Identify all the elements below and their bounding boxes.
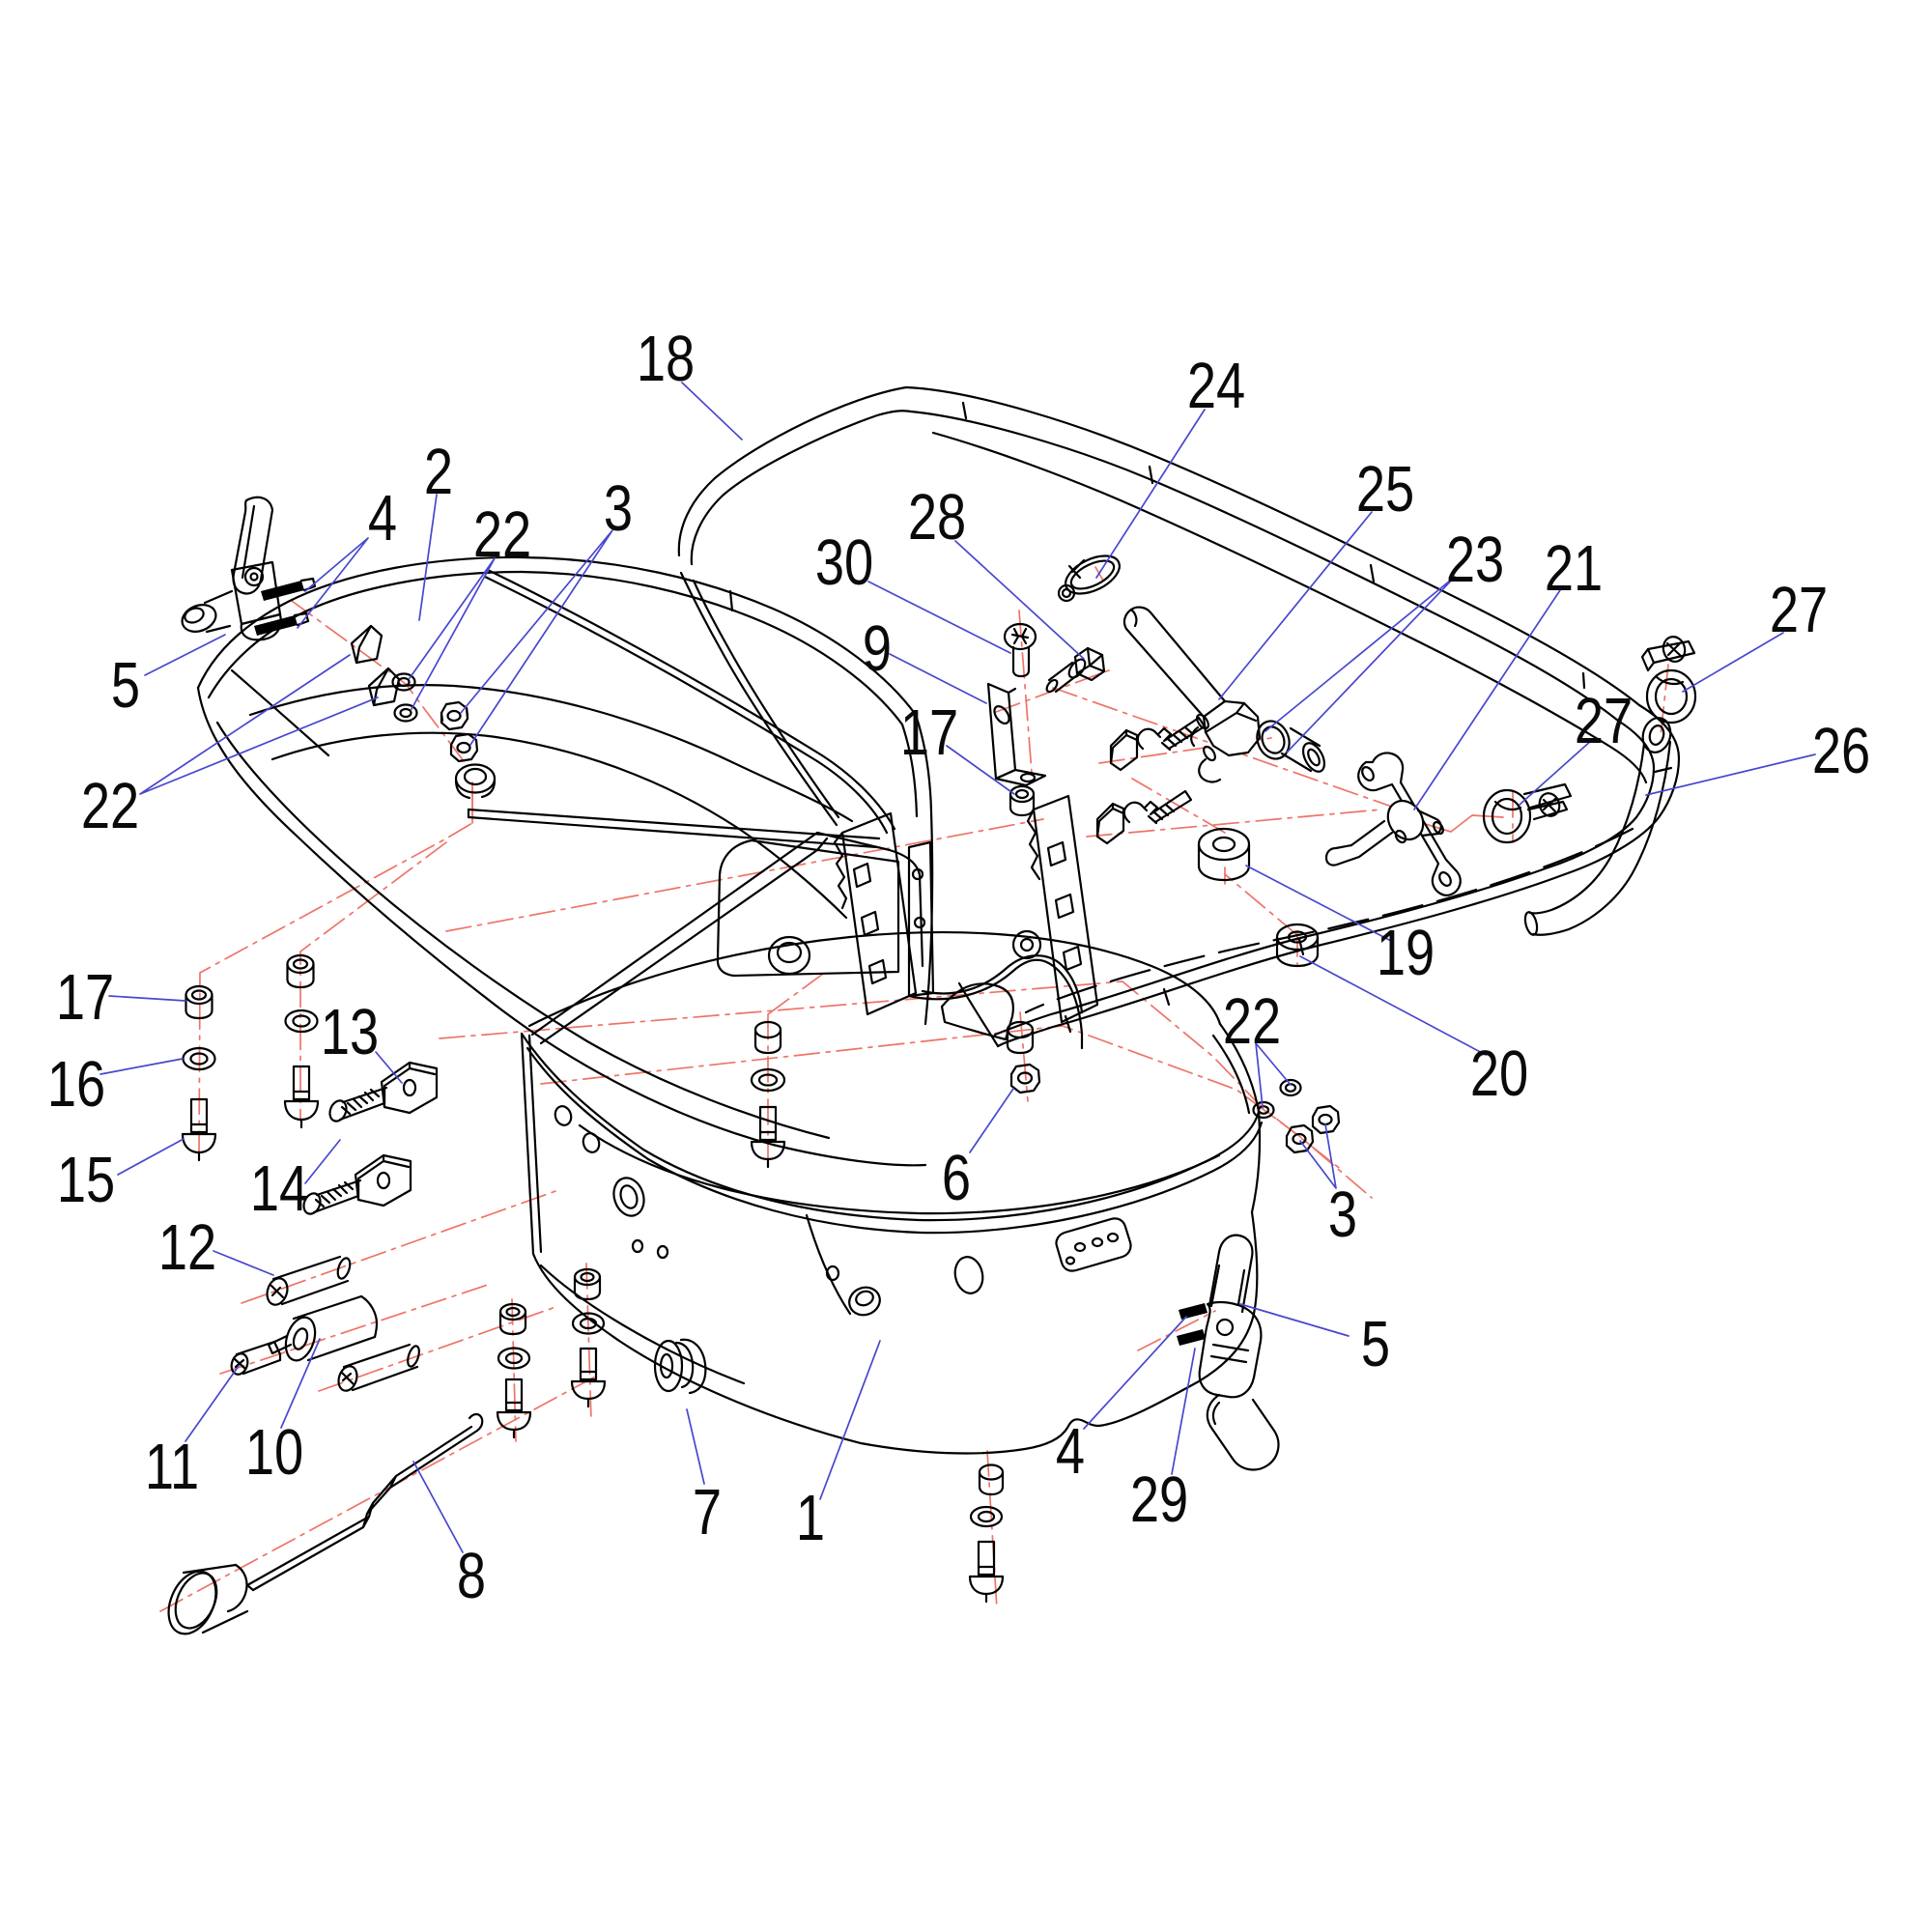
svg-text:14: 14 — [250, 1152, 308, 1225]
svg-text:11: 11 — [145, 1431, 199, 1503]
svg-text:8: 8 — [457, 1540, 486, 1612]
svg-text:17: 17 — [900, 696, 958, 769]
svg-text:15: 15 — [57, 1144, 115, 1216]
svg-text:4: 4 — [368, 482, 397, 554]
svg-text:22: 22 — [81, 770, 139, 842]
svg-text:10: 10 — [245, 1416, 303, 1489]
svg-text:16: 16 — [47, 1048, 105, 1121]
svg-text:23: 23 — [1446, 524, 1504, 596]
svg-text:26: 26 — [1812, 715, 1870, 787]
svg-text:1: 1 — [796, 1482, 825, 1554]
svg-text:7: 7 — [693, 1476, 722, 1548]
svg-text:17: 17 — [56, 961, 114, 1034]
svg-text:3: 3 — [1328, 1179, 1357, 1251]
svg-text:22: 22 — [473, 498, 531, 571]
svg-text:28: 28 — [908, 481, 966, 554]
svg-text:3: 3 — [604, 472, 633, 545]
svg-text:30: 30 — [815, 526, 873, 599]
svg-text:5: 5 — [111, 649, 140, 722]
svg-text:27: 27 — [1575, 685, 1633, 757]
svg-text:13: 13 — [321, 996, 379, 1068]
svg-text:25: 25 — [1356, 453, 1414, 526]
svg-text:24: 24 — [1187, 350, 1245, 422]
svg-text:29: 29 — [1130, 1463, 1188, 1536]
svg-text:27: 27 — [1770, 574, 1828, 646]
svg-text:4: 4 — [1056, 1415, 1085, 1488]
svg-text:6: 6 — [942, 1142, 971, 1214]
svg-text:21: 21 — [1545, 532, 1603, 605]
svg-text:22: 22 — [1223, 985, 1281, 1058]
svg-text:19: 19 — [1377, 917, 1435, 989]
svg-text:9: 9 — [863, 612, 892, 685]
svg-text:20: 20 — [1470, 1037, 1528, 1110]
svg-text:12: 12 — [158, 1211, 216, 1284]
svg-text:18: 18 — [637, 323, 695, 395]
svg-text:2: 2 — [424, 436, 453, 508]
svg-text:5: 5 — [1361, 1308, 1390, 1380]
